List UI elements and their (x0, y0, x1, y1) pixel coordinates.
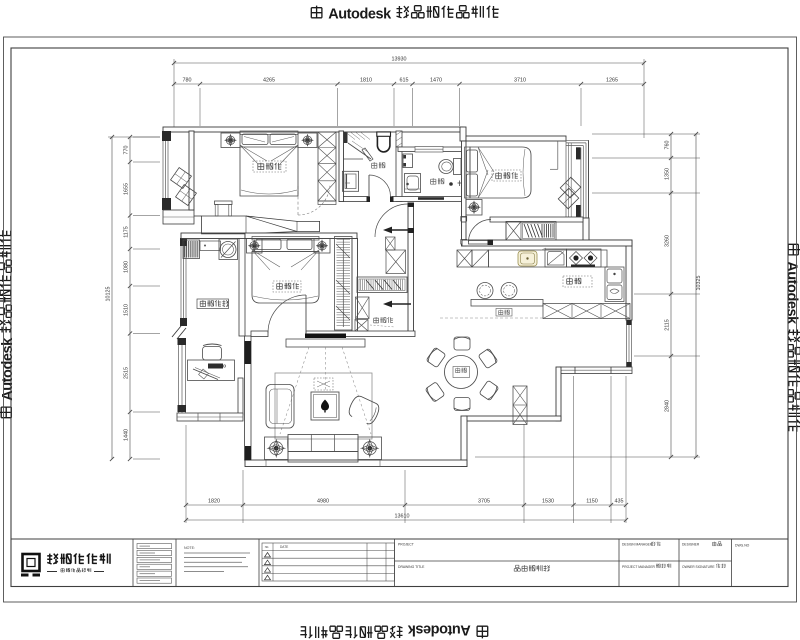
svg-text:1265: 1265 (606, 78, 618, 84)
svg-text:DWG.NO: DWG.NO (735, 544, 750, 548)
svg-text:1150: 1150 (586, 499, 598, 505)
svg-text:615: 615 (400, 78, 409, 84)
svg-text:Autodesk: Autodesk (407, 622, 471, 638)
svg-text:3705: 3705 (478, 499, 490, 505)
svg-text:1655: 1655 (124, 183, 130, 195)
svg-text:760: 760 (665, 141, 671, 150)
svg-text:2115: 2115 (665, 319, 671, 331)
svg-text:1810: 1810 (360, 78, 372, 84)
svg-text:1440: 1440 (124, 429, 130, 441)
svg-text:1510: 1510 (124, 304, 130, 316)
svg-text:PROJECT: PROJECT (398, 543, 414, 547)
svg-text:4265: 4265 (263, 78, 275, 84)
svg-text:13610: 13610 (395, 514, 410, 520)
svg-text:4980: 4980 (317, 499, 329, 505)
svg-text:13930: 13930 (392, 57, 407, 63)
svg-text:1350: 1350 (665, 168, 671, 180)
svg-text:1080: 1080 (124, 261, 130, 273)
svg-text:2515: 2515 (124, 367, 130, 379)
svg-text:no.: no. (265, 545, 270, 549)
svg-text:Autodesk: Autodesk (0, 337, 16, 401)
svg-text:435: 435 (615, 499, 624, 505)
svg-text:3710: 3710 (514, 78, 526, 84)
svg-text:OWNER SIGNATURE: OWNER SIGNATURE (682, 565, 715, 569)
svg-text:DATE: DATE (280, 545, 288, 549)
svg-text:2840: 2840 (665, 400, 671, 412)
svg-text:1175: 1175 (124, 226, 130, 238)
svg-text:1470: 1470 (430, 78, 442, 84)
svg-text:10325: 10325 (696, 276, 702, 291)
svg-text:NOTE:: NOTE: (184, 546, 195, 550)
svg-text:1530: 1530 (542, 499, 554, 505)
svg-text:1820: 1820 (208, 499, 220, 505)
svg-text:PROJECT MANAGER: PROJECT MANAGER (622, 565, 656, 569)
svg-text:10125: 10125 (106, 287, 112, 302)
svg-text:DRAWING TITLE: DRAWING TITLE (398, 565, 425, 569)
svg-text:780: 780 (183, 78, 192, 84)
svg-text:3260: 3260 (665, 235, 671, 247)
svg-text:DESIGNER: DESIGNER (682, 543, 700, 547)
svg-text:DESIGN MANAGER: DESIGN MANAGER (622, 543, 653, 547)
svg-text:Autodesk: Autodesk (328, 7, 392, 23)
svg-text:Autodesk: Autodesk (784, 261, 800, 325)
svg-text:770: 770 (124, 146, 130, 155)
